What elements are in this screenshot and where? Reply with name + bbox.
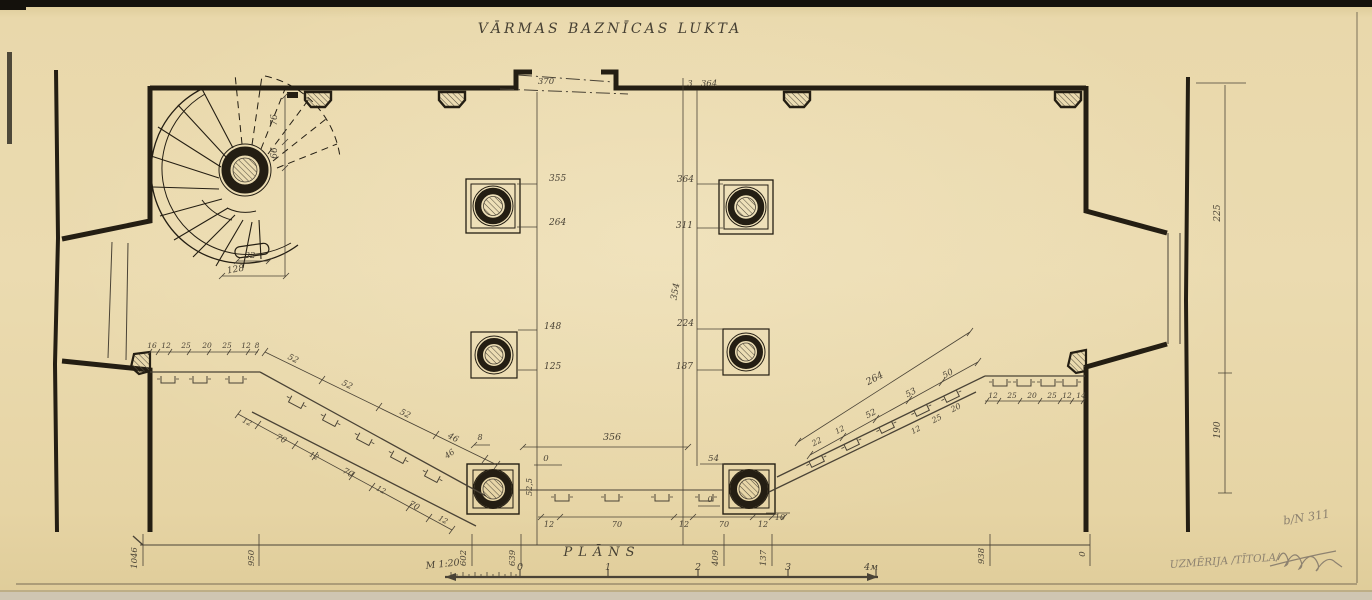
dimension-label: 52 [340,378,354,392]
column [471,332,517,378]
dimension-label: 10 [775,513,785,522]
dimension-label: 50 [941,367,956,381]
left-stair-dim-lines [148,348,500,534]
dimension-label: 364 [677,175,694,185]
dimension-label: 409 [711,549,721,567]
dimension-label: 20 [201,341,212,350]
walls [55,70,1188,532]
dimension-label: 12 [988,391,998,400]
dimension-label: 14 [1076,391,1086,400]
sheet-title: VĀRMAS BAZNĪCAS LUKTA [478,19,743,37]
dimension-label: 70 [341,466,356,480]
dimension-label: 12 [241,341,251,350]
corbel [439,92,465,107]
dimension-label: 8 [255,341,260,350]
newel-core [233,158,257,182]
dimension-label: 224 [676,319,694,329]
dimension-label: 0 [543,454,549,464]
drawing-number: b/N 311 [1282,506,1331,527]
dimension-label: 25 [221,341,232,350]
dimension-label: 20 [1026,391,1037,400]
column [723,464,775,514]
dimension-label: 355 [549,174,566,184]
dimension-label: 639 [508,549,518,566]
dimension-label: 1046 [130,547,140,569]
dimension-label: 54 [708,454,719,464]
dimension-label: 12 [437,514,450,527]
dimension-label: 12 [544,520,554,529]
plan-caption: PLĀNS [562,544,640,560]
right-stair-dim-lines [795,328,1085,459]
wall-bracket [287,92,298,98]
scale-tick-label: 2 [694,562,701,573]
loft-edge [519,490,723,501]
top-wall-right [601,72,1086,88]
dimension-label: 938 [977,547,987,564]
dimension-label: 128 [226,264,245,277]
dimension-label: 0 [707,495,712,504]
dimension-label: 25 [929,412,943,425]
left-wall-inner-lower [62,361,150,532]
dimension-label: 311 [676,221,693,231]
dimension-labels: 7666321283703364355264364311354148125224… [130,77,1223,569]
plan-drawing: 0 1 2 3 4м M 1:20 VĀRMAS BAZNĪCAS LUKTA … [0,0,1372,600]
dimension-label: 12 [758,520,768,529]
dimension-label: 12 [1062,391,1072,400]
dimension-label: 46 [445,431,461,446]
dimension-label: 12 [833,423,846,436]
dimension-label: 25 [180,341,191,350]
left-stair [148,348,500,534]
scale-tick-label: 3 [785,562,791,573]
surveyor-note: UZMĒRIJA /TĪTOLA/ [1169,550,1281,571]
dimension-label: 264 [548,218,566,228]
right-wall-outer [1186,77,1188,532]
scale-bar: 0 1 2 3 4м M 1:20 [424,557,878,581]
left-wall-corbel [131,352,150,374]
column [723,329,769,375]
dimension-label: 264 [863,370,885,389]
left-wall-inner-upper [62,86,150,239]
left-niche-reveal [108,242,128,360]
dimension-label: 76 [270,114,280,126]
dimension-label: 950 [247,549,257,566]
scale-tick-label: 1 [605,562,611,573]
dimension-label: 16 [147,341,157,350]
dimension-label: 52 [286,352,300,366]
left-wall-outer [55,70,58,532]
dimension-label: 12 [679,520,689,529]
columns [466,179,775,514]
column [466,179,520,233]
dimension-label: 70 [719,520,729,529]
right-wall-corbel [1068,350,1086,373]
corbel [305,92,331,107]
dimension-label: 32 [245,251,256,261]
right-stair [769,328,1085,492]
dimension-label: 364 [701,79,717,89]
dimension-label: 137 [759,549,769,566]
right-wall-inner-upper [1086,86,1167,233]
dimension-label: 12 [241,416,254,429]
bottom-columns-dim-row [538,514,787,520]
dimension-label: 66 [270,147,280,159]
dimension-label: 190 [1213,421,1223,438]
dimension-label: 70 [612,520,622,529]
dimension-label: 354 [670,282,683,301]
dimension-label: 187 [676,362,693,372]
dimension-label: 12 [909,423,922,436]
axis-dashdot [500,75,628,94]
dimension-label: 125 [544,362,561,372]
scale-note: M 1:20 [424,557,460,572]
dimension-label: 53 [904,386,918,400]
signature [1270,551,1342,571]
right-niche-reveal [1168,233,1180,344]
dimension-label: 148 [544,322,561,332]
dimension-label: 52,5 [525,478,534,496]
dimension-label: 12 [161,341,171,350]
dimension-label: 70 [407,499,422,513]
dimension-label: 22 [809,435,823,448]
dimension-label: 52 [398,407,412,421]
right-wall-inner-lower [1086,344,1167,532]
corbel [784,92,810,107]
column [467,464,519,514]
dimension-label: 46 [442,447,456,461]
dimension-label: 0 [1078,551,1088,557]
dimension-label: 370 [538,77,555,87]
drawing-sheet: 0 1 2 3 4м M 1:20 VĀRMAS BAZNĪCAS LUKTA … [0,0,1372,600]
dimension-label: 25 [1046,391,1057,400]
dimension-label: 8 [477,433,482,442]
dimension-label: 12 [308,450,321,463]
dimension-label: 20 [948,401,962,414]
dimension-label: 3 [687,79,692,88]
corbel [1055,92,1081,107]
column [719,180,773,234]
dimension-label: 602 [459,550,469,566]
top-wall-left [150,72,532,88]
dimension-label: 25 [1006,391,1017,400]
dimension-label: 225 [1213,204,1223,222]
corbels [131,92,1086,374]
scale-tick-label: 4м [863,562,878,573]
dimension-label: 356 [603,432,621,443]
